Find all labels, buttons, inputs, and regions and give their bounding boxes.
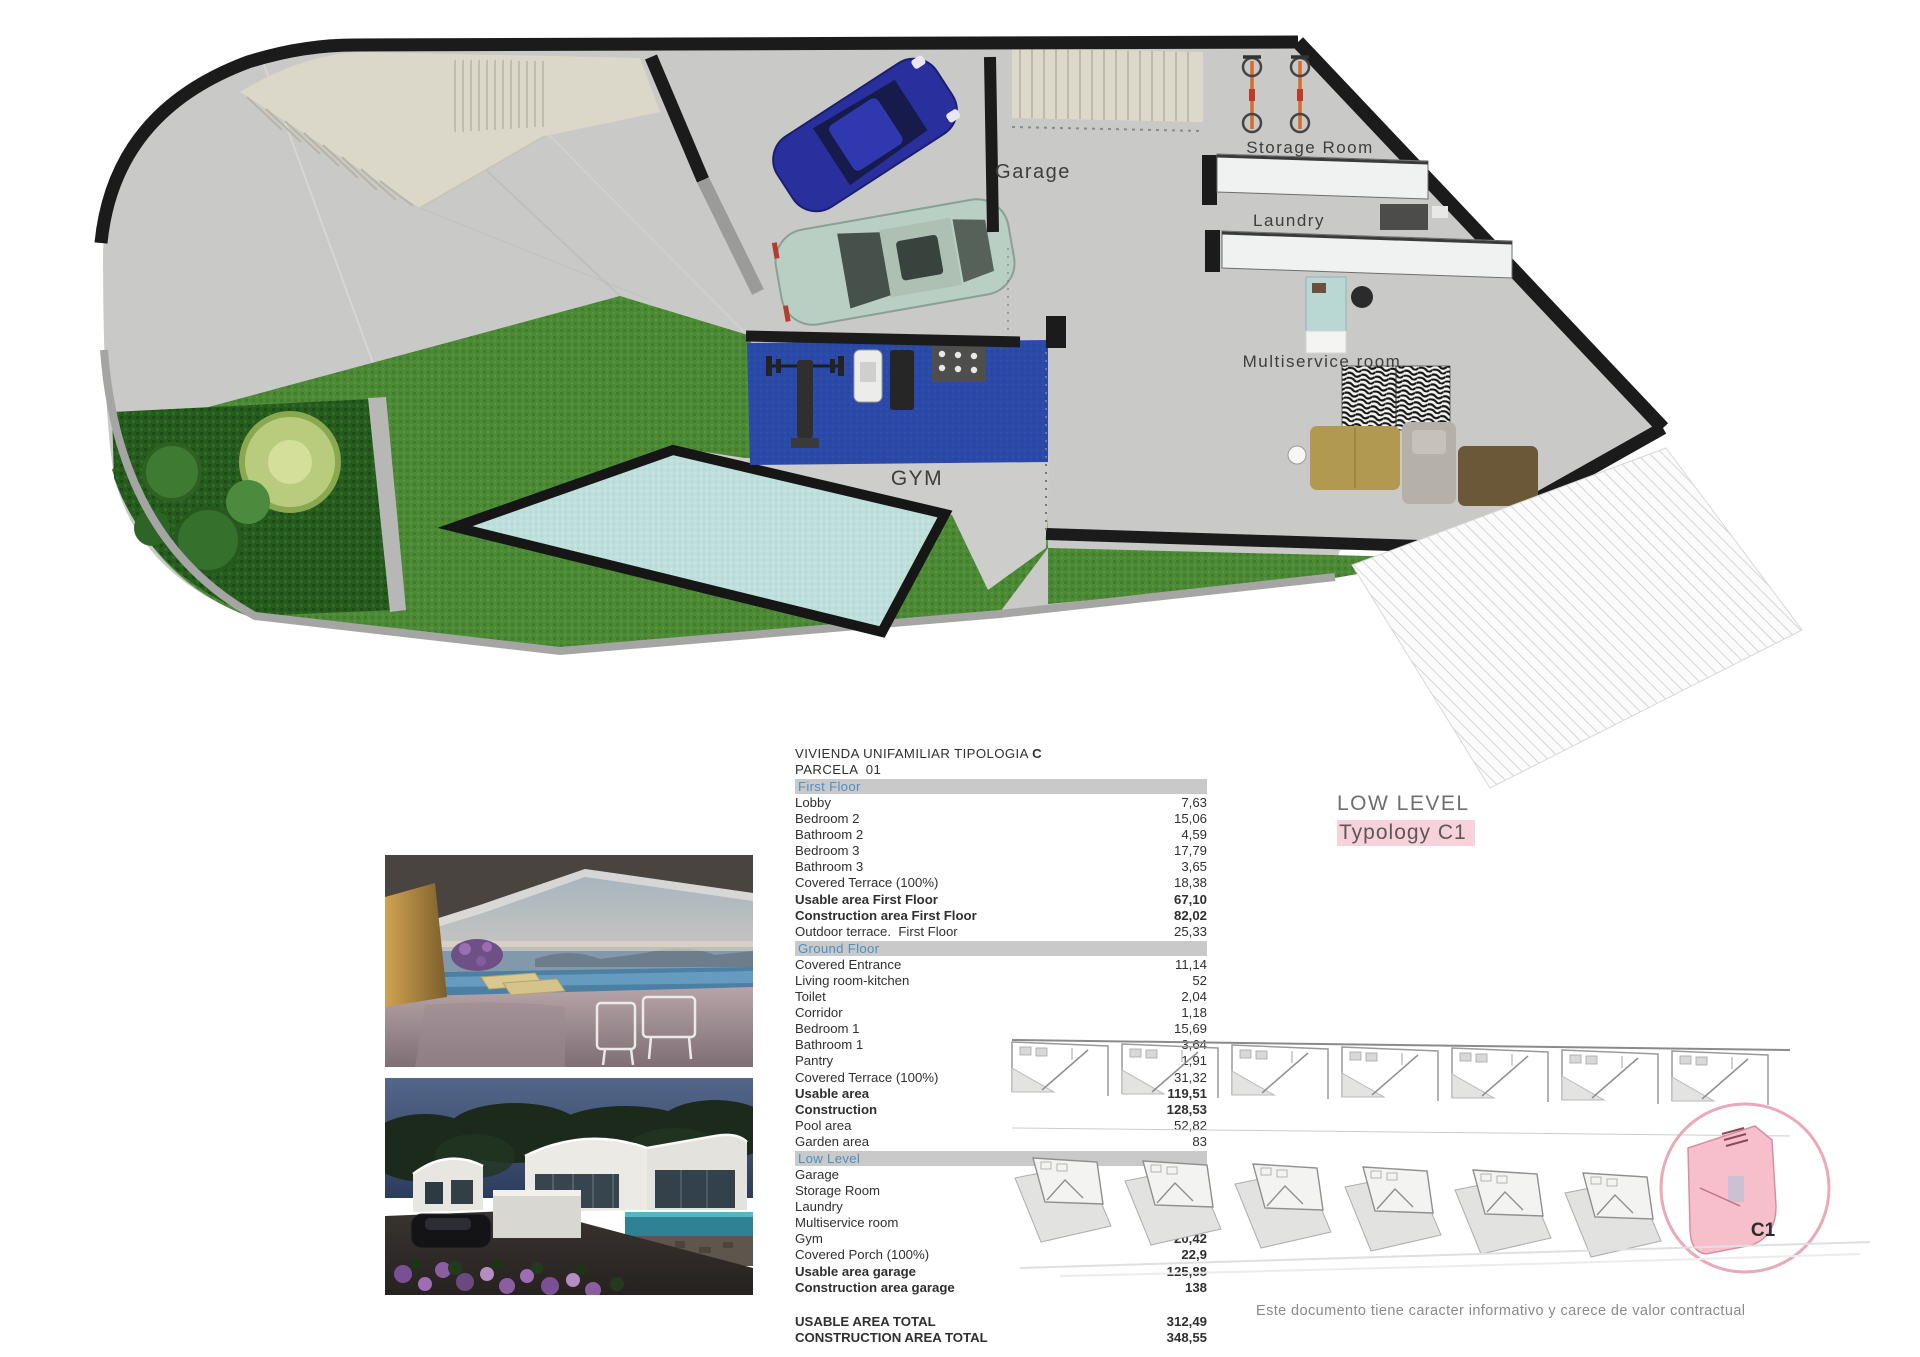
table-row: Lobby7,63 [795,795,1207,811]
table-row: Covered Terrace (100%)18,38 [795,875,1207,891]
wall-pillar [1046,316,1066,348]
label-storage-room: Storage Room [1246,138,1374,157]
table-row: Bathroom 24,59 [795,827,1207,843]
table-row: Outdoor terrace. First Floor25,33 [795,924,1207,940]
garage-stairs [1012,48,1203,131]
label-laundry: Laundry [1253,211,1325,230]
table-row: Corridor1,18 [795,1005,1207,1021]
wall-segment [1202,155,1217,205]
level-caption-typology: Typology C1 [1337,821,1475,845]
table-title: VIVIENDA UNIFAMILIAR TIPOLOGIA C [795,746,1207,762]
table-gap [795,1296,1207,1314]
label-gym: GYM [891,467,943,490]
photo-villa-night [385,1078,753,1295]
disclaimer-text: Este documento tiene caracter informativ… [1256,1303,1816,1319]
siteplan-row-bottom [1015,1158,1661,1257]
label-multiservice-room: Multiservice room [1243,352,1402,371]
table-row: Usable area First Floor67,10 [795,892,1207,908]
car-night [411,1214,491,1248]
document-page: Garage Storage Room Laundry Multiservice… [0,0,1920,1357]
table-subtitle: PARCELA 01 [795,762,1207,778]
table-section-header: Ground Floor [795,941,1207,956]
table-row: USABLE AREA TOTAL312,49 [795,1314,1207,1330]
table-row: Covered Entrance11,14 [795,957,1207,973]
table-row: Construction area First Floor82,02 [795,908,1207,924]
laundry-desk [1380,204,1428,230]
office-chair [1351,286,1373,308]
level-caption-title: LOW LEVEL [1337,792,1475,816]
table-row: Bathroom 33,65 [795,859,1207,875]
storage-shelf [1217,154,1428,199]
table-row: Toilet2,04 [795,989,1207,1005]
floor-lamp [1288,446,1306,464]
wall-segment [1205,230,1220,272]
planting-bed [112,399,392,616]
photo-terrace-pool [385,855,753,1067]
table-row: Construction area garage138 [795,1280,1207,1296]
siteplan-unit-label: C1 [1751,1220,1776,1241]
siteplan-row-top [1012,1042,1768,1105]
table-section-header: First Floor [795,779,1207,794]
typology-letter: C [1032,746,1042,761]
floor-plan: Garage Storage Room Laundry Multiservice… [0,0,1920,800]
table-row: Bedroom 215,06 [795,811,1207,827]
level-caption: LOW LEVEL Typology C1 [1337,792,1475,845]
table-row: CONSTRUCTION AREA TOTAL348,55 [795,1330,1207,1346]
table-row: Bedroom 317,79 [795,843,1207,859]
site-plan: C1 [1000,1028,1890,1278]
table-row: Living room-kitchen52 [795,973,1207,989]
label-garage: Garage [995,161,1071,183]
